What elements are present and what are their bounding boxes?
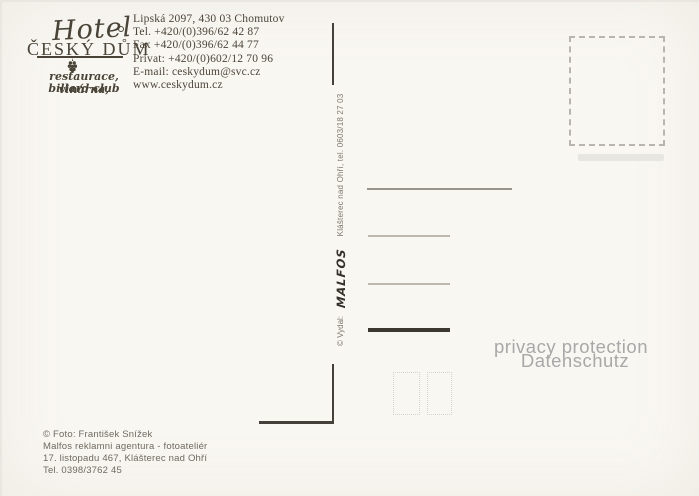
- photo-credits-block: © Foto: František Snížek Malfos reklamni…: [43, 429, 207, 477]
- publisher-prefix: © Vydal:: [336, 316, 345, 346]
- postal-code-box-2: [427, 372, 452, 415]
- credit-agency: Malfos reklamni agentura - fotoateliér: [43, 441, 207, 453]
- publisher-logo-text: MALFOS: [334, 248, 348, 309]
- address-line-1: [367, 188, 512, 190]
- contact-email: E-mail: ceskydum@svc.cz: [133, 66, 285, 79]
- credit-photo: © Foto: František Snížek: [43, 429, 207, 441]
- logo-rule: [37, 56, 123, 58]
- divider-line-bottom: [332, 364, 334, 422]
- postal-code-box-1: [393, 372, 420, 415]
- hotel-logo: Hotel ČESKÝ DŮM restaurace, vinárna,: [26, 16, 142, 92]
- contact-tel: Tel. +420/(0)396/62 42 87: [133, 26, 285, 39]
- publisher-credit-vertical: © Vydal: MALFOS Klášterec nad Ohří, tel.…: [334, 90, 347, 346]
- logo-tagline-2: billard club: [26, 82, 142, 95]
- postcard-back: Hotel ČESKÝ DŮM restaurace, vinárna,: [0, 0, 699, 496]
- credit-tel: Tel. 0398/3762 45: [43, 465, 207, 477]
- address-line-2: [368, 235, 450, 237]
- registered-mark-icon: [118, 26, 124, 32]
- privacy-line-de: Datenschutz: [475, 354, 675, 368]
- stamp-box: [569, 36, 665, 146]
- credit-address: 17. listopadu 467, Klášterec nad Ohří: [43, 453, 207, 465]
- address-line-4: [368, 328, 450, 332]
- contact-fax: Fax +420/(0)396/62 44 77: [133, 39, 285, 52]
- contact-website: www.ceskydum.cz: [133, 79, 285, 92]
- divider-line-top: [332, 23, 334, 85]
- redacted-mark: [578, 154, 664, 161]
- publisher-location: Klášterec nad Ohří, tel. 0603/18 27 03: [336, 94, 345, 237]
- address-line-3: [368, 283, 450, 285]
- divider-line-foot: [259, 421, 334, 424]
- contact-privat: Privat: +420/(0)602/12 70 96: [133, 53, 285, 66]
- hotel-contact-block: Lipská 2097, 430 03 Chomutov Tel. +420/(…: [133, 13, 285, 92]
- privacy-watermark: privacy protection Datenschutz: [471, 340, 671, 367]
- contact-address: Lipská 2097, 430 03 Chomutov: [133, 13, 285, 26]
